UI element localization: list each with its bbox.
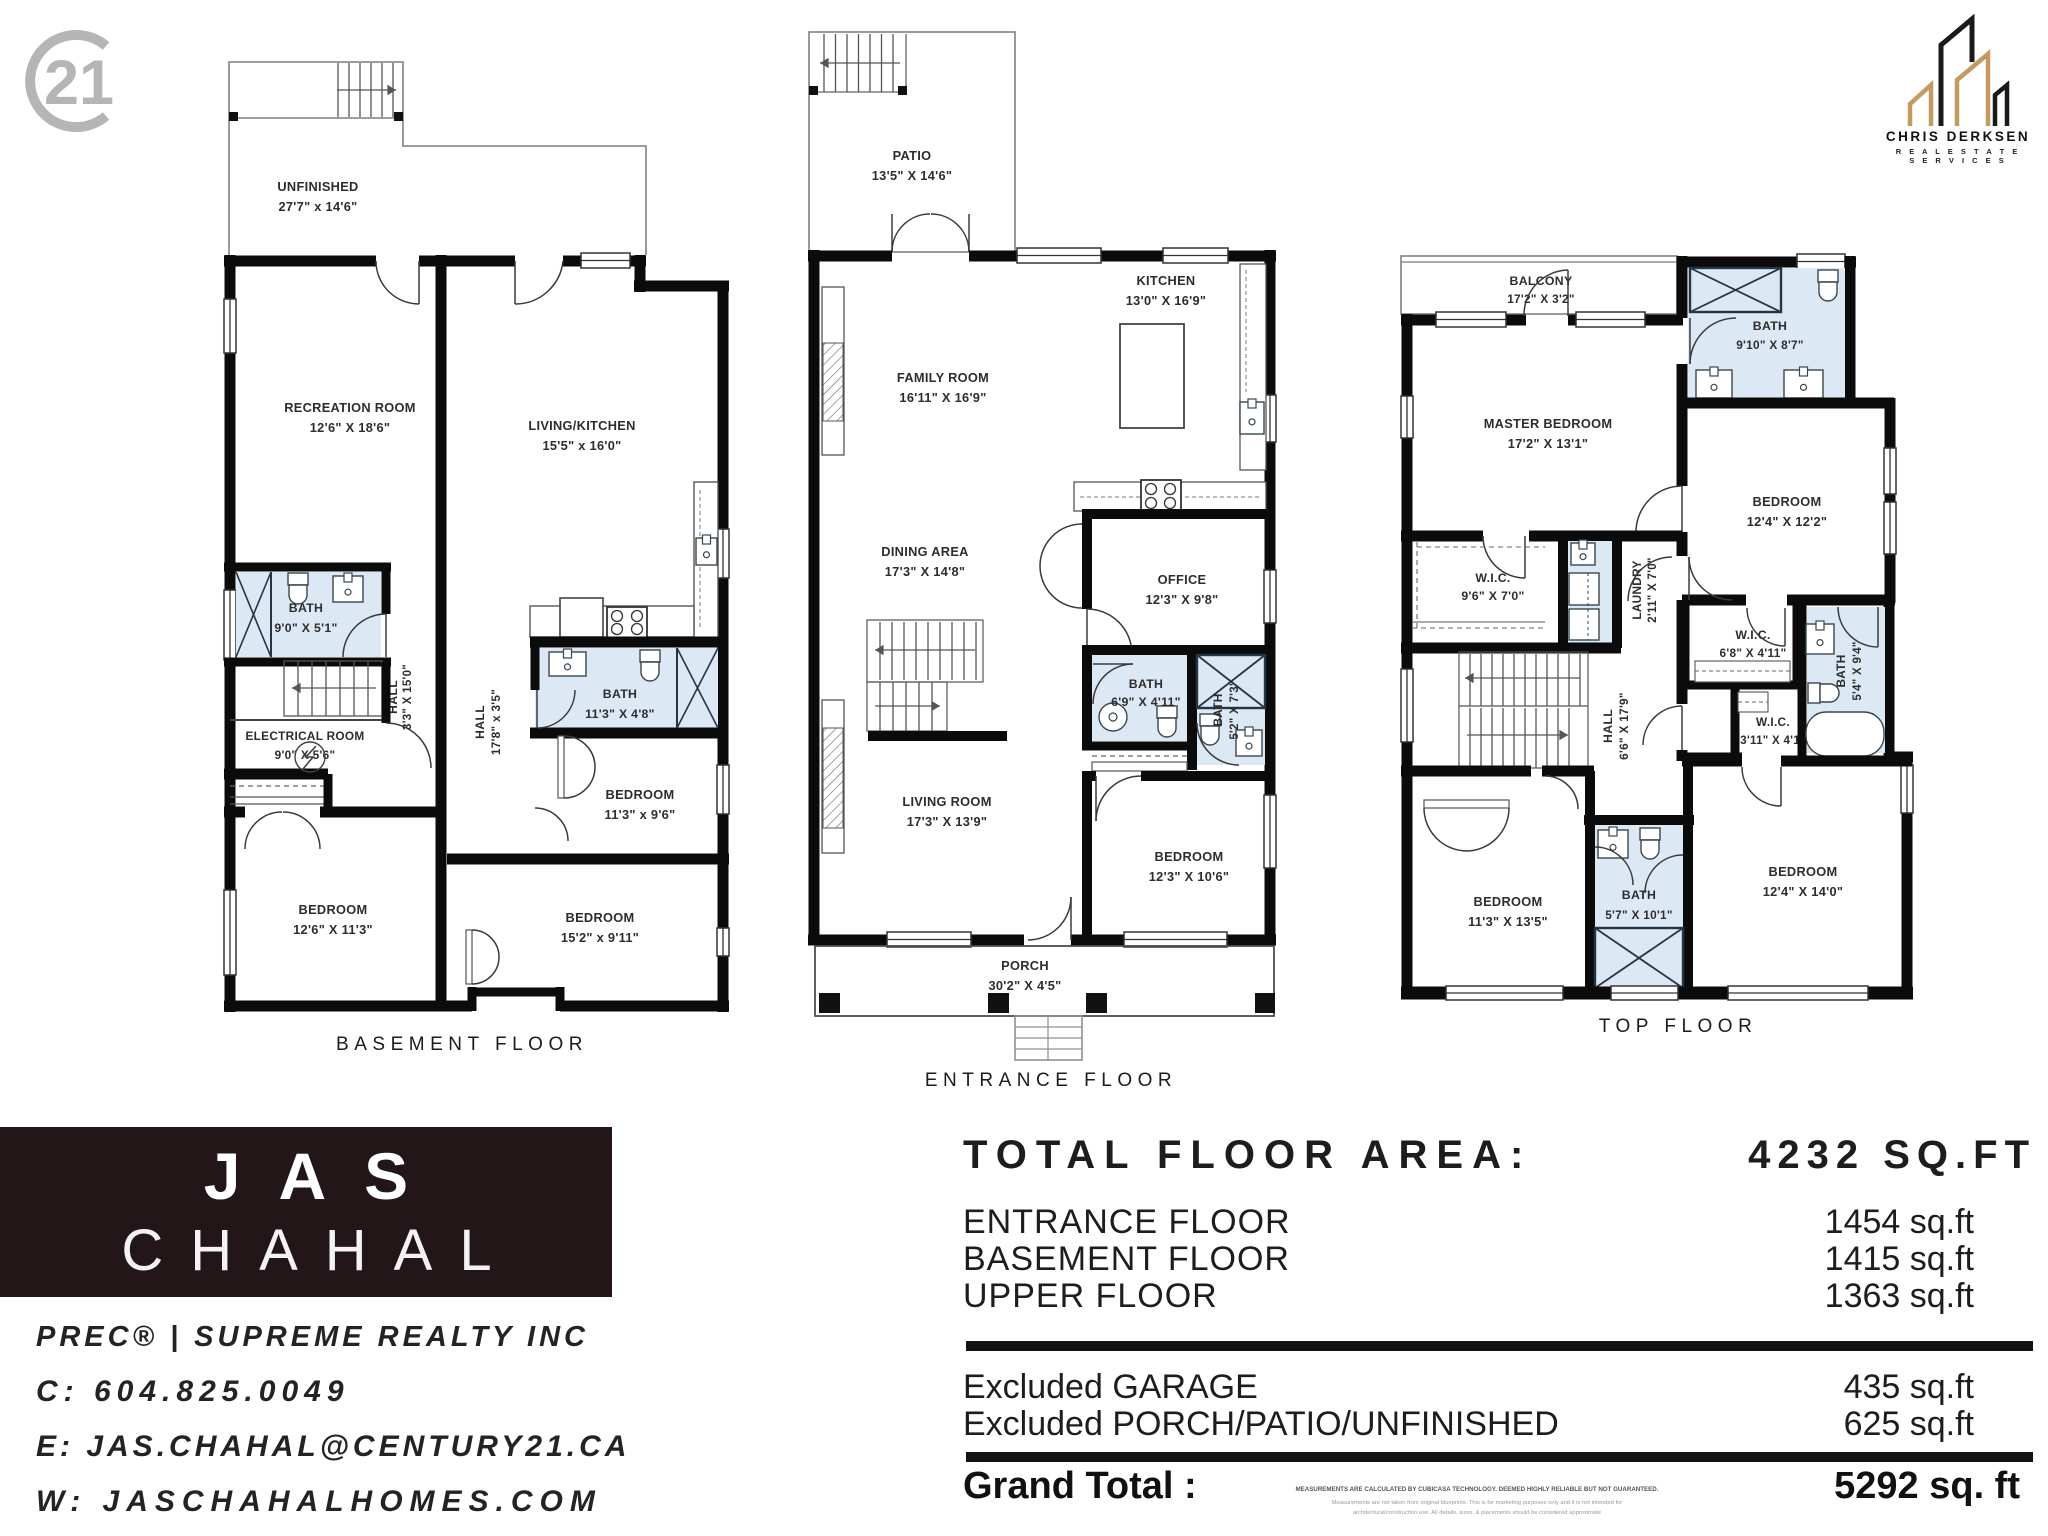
svg-text:Excluded PORCH/PATIO/UNFINISHE: Excluded PORCH/PATIO/UNFINISHED <box>963 1405 1559 1443</box>
svg-text:BEDROOM: BEDROOM <box>1474 894 1543 909</box>
svg-text:5'7" X 10'1": 5'7" X 10'1" <box>1605 908 1673 922</box>
svg-text:R E A L E S T A T E: R E A L E S T A T E <box>1896 147 2021 156</box>
svg-text:BATH: BATH <box>289 601 323 615</box>
svg-text:11'3" x 9'6": 11'3" x 9'6" <box>605 807 676 822</box>
svg-text:11'3" X 4'8": 11'3" X 4'8" <box>585 707 655 721</box>
svg-text:OFFICE: OFFICE <box>1158 572 1207 587</box>
svg-text:BEDROOM: BEDROOM <box>566 910 635 925</box>
svg-text:12'6" X 18'6": 12'6" X 18'6" <box>310 420 390 435</box>
svg-text:1415 sq.ft: 1415 sq.ft <box>1825 1240 1975 1278</box>
svg-text:21: 21 <box>44 48 114 118</box>
svg-text:CHAHAL: CHAHAL <box>121 1218 518 1283</box>
svg-text:BATH: BATH <box>1622 888 1656 902</box>
svg-text:BASEMENT FLOOR: BASEMENT FLOOR <box>336 1034 588 1055</box>
svg-text:27'7" x 14'6": 27'7" x 14'6" <box>278 199 357 214</box>
svg-text:TOP FLOOR: TOP FLOOR <box>1599 1016 1758 1037</box>
svg-text:BATH: BATH <box>1129 677 1163 691</box>
svg-text:BEDROOM: BEDROOM <box>606 787 675 802</box>
svg-text:architectural/construction use: architectural/construction use. All deta… <box>1353 1510 1601 1516</box>
svg-text:9'6" X 7'0": 9'6" X 7'0" <box>1461 589 1524 603</box>
svg-text:Measurements are not taken fro: Measurements are not taken from original… <box>1332 1500 1623 1506</box>
svg-text:UPPER FLOOR: UPPER FLOOR <box>963 1277 1218 1315</box>
svg-text:17'2" X 13'1": 17'2" X 13'1" <box>1508 436 1588 451</box>
svg-text:Excluded GARAGE: Excluded GARAGE <box>963 1368 1258 1406</box>
svg-text:435 sq.ft: 435 sq.ft <box>1844 1368 1975 1406</box>
svg-text:MASTER BEDROOM: MASTER BEDROOM <box>1484 416 1613 431</box>
svg-text:30'2" X 4'5": 30'2" X 4'5" <box>988 978 1061 993</box>
svg-text:BEDROOM: BEDROOM <box>1155 849 1224 864</box>
svg-text:JAS: JAS <box>204 1139 446 1213</box>
svg-text:5292 sq. ft: 5292 sq. ft <box>1834 1465 2020 1507</box>
svg-text:Grand Total :: Grand Total : <box>963 1465 1197 1507</box>
svg-text:17'3" X 13'9": 17'3" X 13'9" <box>907 814 987 829</box>
svg-text:6'6" X 17'9": 6'6" X 17'9" <box>1617 692 1631 760</box>
svg-text:HALL: HALL <box>1601 709 1615 743</box>
svg-text:13'5" X 14'6": 13'5" X 14'6" <box>872 168 952 183</box>
svg-text:ENTRANCE FLOOR: ENTRANCE FLOOR <box>963 1203 1291 1241</box>
svg-text:11'3" X 13'5": 11'3" X 13'5" <box>1468 914 1548 929</box>
svg-text:W.I.C.: W.I.C. <box>1735 628 1770 642</box>
svg-text:12'3" X 9'8": 12'3" X 9'8" <box>1145 592 1218 607</box>
svg-text:BEDROOM: BEDROOM <box>1753 494 1822 509</box>
svg-text:12'4" X 12'2": 12'4" X 12'2" <box>1747 514 1827 529</box>
svg-text:MEASUREMENTS ARE CALCULATED BY: MEASUREMENTS ARE CALCULATED BY CUBICASA … <box>1295 1486 1658 1493</box>
svg-text:9'0" X 5'6": 9'0" X 5'6" <box>275 748 336 762</box>
svg-text:3'11" X 4'1": 3'11" X 4'1" <box>1740 735 1805 747</box>
svg-text:17'8" x 3'5": 17'8" x 3'5" <box>489 689 503 755</box>
svg-text:5'4" X 9'4": 5'4" X 9'4" <box>1852 641 1864 700</box>
svg-text:CHRIS DERKSEN: CHRIS DERKSEN <box>1886 129 2030 144</box>
svg-text:BATH: BATH <box>1211 693 1225 726</box>
svg-text:BEDROOM: BEDROOM <box>1769 864 1838 879</box>
svg-text:TOTAL FLOOR AREA:: TOTAL FLOOR AREA: <box>963 1133 1532 1177</box>
svg-text:FAMILY ROOM: FAMILY ROOM <box>897 370 989 385</box>
svg-text:HALL: HALL <box>473 705 487 739</box>
svg-text:625 sq.ft: 625 sq.ft <box>1844 1405 1975 1443</box>
svg-text:LIVING ROOM: LIVING ROOM <box>902 794 991 809</box>
svg-text:ELECTRICAL ROOM: ELECTRICAL ROOM <box>246 729 365 743</box>
svg-text:KITCHEN: KITCHEN <box>1137 273 1196 288</box>
svg-text:BALCONY: BALCONY <box>1510 274 1573 288</box>
svg-text:12'4" X 14'0": 12'4" X 14'0" <box>1763 884 1843 899</box>
svg-text:E: JAS.CHAHAL@CENTURY21.CA: E: JAS.CHAHAL@CENTURY21.CA <box>36 1430 630 1463</box>
svg-text:12'3" X 10'6": 12'3" X 10'6" <box>1149 869 1229 884</box>
svg-text:C: 604.825.0049: C: 604.825.0049 <box>36 1375 350 1408</box>
svg-text:LIVING/KITCHEN: LIVING/KITCHEN <box>528 418 635 433</box>
svg-text:S E R V I C E S: S E R V I C E S <box>1909 156 2007 165</box>
svg-text:5'2" X 7'3": 5'2" X 7'3" <box>1229 680 1241 739</box>
svg-text:13'0" X 16'9": 13'0" X 16'9" <box>1126 293 1206 308</box>
svg-text:15'5" x 16'0": 15'5" x 16'0" <box>542 438 621 453</box>
svg-text:UNFINISHED: UNFINISHED <box>277 179 358 194</box>
svg-text:3'3" X 15'0": 3'3" X 15'0" <box>402 664 414 730</box>
svg-text:W.I.C.: W.I.C. <box>1475 571 1510 585</box>
svg-text:W.I.C.: W.I.C. <box>1756 715 1790 729</box>
svg-text:12'6" X 11'3": 12'6" X 11'3" <box>293 922 373 937</box>
svg-text:1363 sq.ft: 1363 sq.ft <box>1825 1277 1975 1315</box>
svg-text:1454 sq.ft: 1454 sq.ft <box>1825 1203 1975 1241</box>
svg-text:6'8" X 4'11": 6'8" X 4'11" <box>1720 646 1787 660</box>
svg-text:BEDROOM: BEDROOM <box>299 902 368 917</box>
svg-text:9'10" X 8'7": 9'10" X 8'7" <box>1736 338 1804 352</box>
svg-text:2'11" X 7'0": 2'11" X 7'0" <box>1647 557 1659 622</box>
svg-text:9'0" X 5'1": 9'0" X 5'1" <box>274 621 337 635</box>
svg-text:6'9" X 4'11": 6'9" X 4'11" <box>1111 695 1181 709</box>
svg-text:BATH: BATH <box>1753 319 1787 333</box>
svg-text:17'3" X 14'8": 17'3" X 14'8" <box>885 564 965 579</box>
svg-text:BATH: BATH <box>1834 654 1848 687</box>
svg-text:16'11" X 16'9": 16'11" X 16'9" <box>899 390 986 405</box>
svg-text:ENTRANCE FLOOR: ENTRANCE FLOOR <box>925 1070 1177 1091</box>
svg-text:W: JASCHAHALHOMES.COM: W: JASCHAHALHOMES.COM <box>36 1485 602 1518</box>
svg-text:DINING AREA: DINING AREA <box>881 544 968 559</box>
svg-text:PREC® | SUPREME REALTY INC: PREC® | SUPREME REALTY INC <box>36 1321 589 1353</box>
svg-text:BASEMENT FLOOR: BASEMENT FLOOR <box>963 1240 1290 1278</box>
svg-text:BATH: BATH <box>603 687 637 701</box>
svg-text:15'2" x 9'11": 15'2" x 9'11" <box>561 930 639 945</box>
svg-text:4232 SQ.FT: 4232 SQ.FT <box>1748 1133 2036 1177</box>
svg-text:17'2" X 3'2": 17'2" X 3'2" <box>1507 292 1575 306</box>
svg-text:PATIO: PATIO <box>893 148 932 163</box>
svg-text:PORCH: PORCH <box>1001 958 1049 973</box>
svg-text:RECREATION ROOM: RECREATION ROOM <box>284 400 416 415</box>
